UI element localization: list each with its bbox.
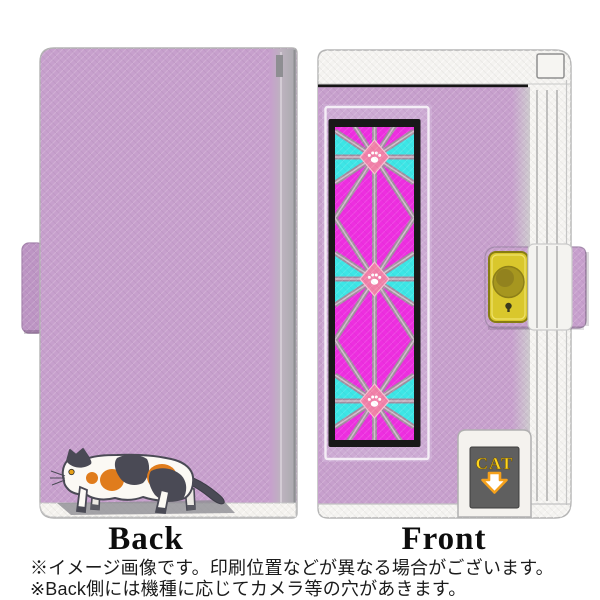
spine-notch [276, 55, 283, 77]
corner-piece [537, 54, 564, 78]
back-view-label: Back [108, 521, 184, 558]
product-image: CAT Back Front ※イメージ画像です。印刷位置などが異なる場合がござ… [0, 0, 600, 600]
cat-eye [69, 469, 74, 474]
front-view: CAT [318, 50, 589, 518]
cat-badge: CAT [458, 430, 531, 517]
case-illustration: CAT [0, 0, 600, 530]
asanoha-pattern [335, 96, 414, 462]
disclaimer-line-1: ※イメージ画像です。印刷位置などが異なる場合がございます。 [30, 558, 590, 579]
back-view [22, 48, 297, 518]
clasp-strap [485, 244, 589, 330]
disclaimer-notes: ※イメージ画像です。印刷位置などが異なる場合がございます。 ※Back側には機種… [30, 558, 590, 600]
cat-badge-text: CAT [476, 454, 514, 473]
stained-glass-window [322, 96, 432, 462]
back-spine-edge [270, 49, 296, 517]
clasp-button [489, 252, 528, 322]
disclaimer-line-2: ※Back側には機種に応じてカメラ等の穴があきます。 [30, 579, 590, 600]
front-view-label: Front [401, 521, 486, 558]
